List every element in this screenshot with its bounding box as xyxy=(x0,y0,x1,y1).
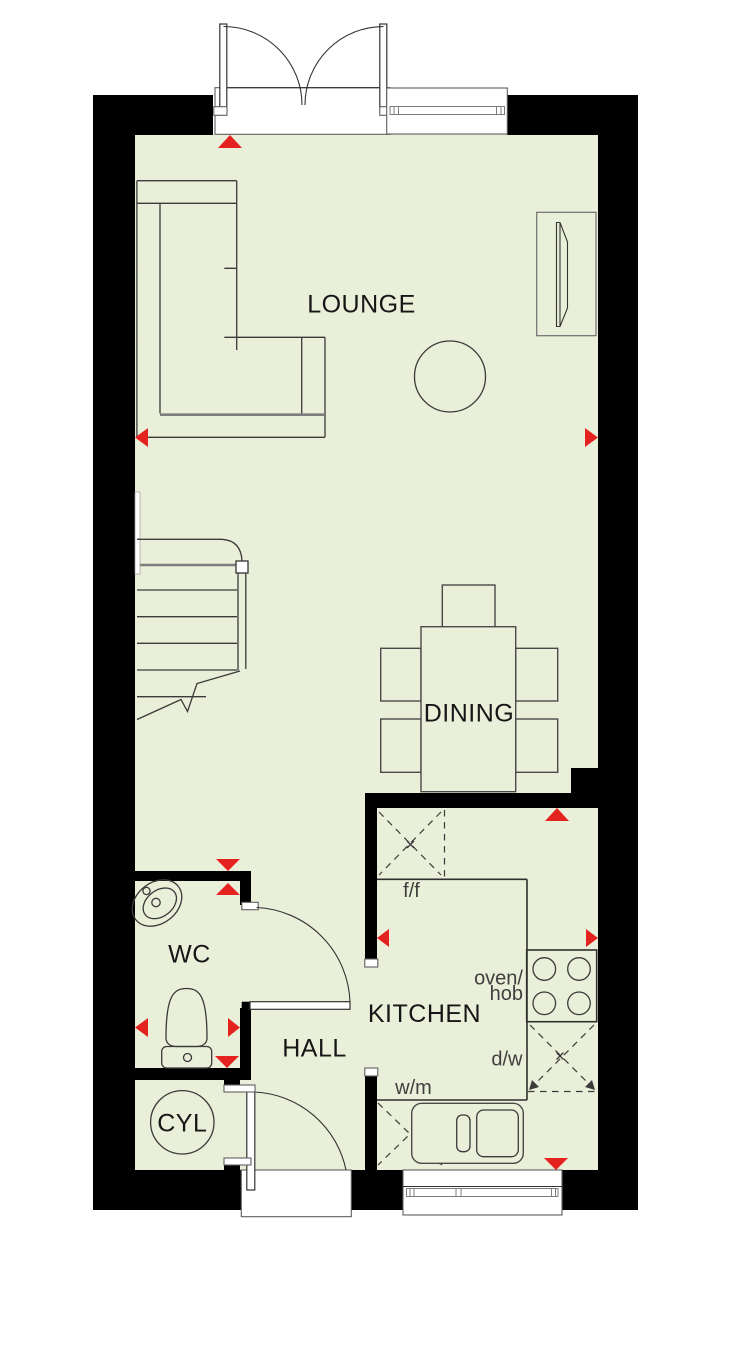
wall-bottom-right xyxy=(562,1170,638,1210)
room-label-cyl: CYL xyxy=(157,1110,207,1138)
wall-right xyxy=(598,95,638,1210)
sink-unit-outline xyxy=(412,1103,524,1163)
dining-chair xyxy=(442,585,495,630)
cyl-doorway-jamb-bottom xyxy=(224,1158,251,1165)
wall-dining-step xyxy=(571,768,598,793)
front-door-porch xyxy=(241,1170,351,1217)
room-label-wc: WC xyxy=(168,941,211,969)
french-door-threshold xyxy=(215,88,390,135)
wall-wc-door-stub xyxy=(240,881,251,905)
front-door-leaf xyxy=(247,1090,255,1190)
kitchen-sink xyxy=(412,1103,524,1163)
kitchen-doorway-jamb-bottom xyxy=(365,1068,378,1076)
wall-kitchen-west-upper xyxy=(365,808,377,966)
label-dishwasher: d/w xyxy=(491,1049,523,1071)
label-fridge-freezer: f/f xyxy=(403,880,420,902)
room-label-dining: DINING xyxy=(424,700,515,728)
dining-chair xyxy=(381,648,421,701)
label-oven-hob-line2: hob xyxy=(490,983,523,1005)
room-label-kitchen: KITCHEN xyxy=(368,1000,481,1028)
wall-door-nub xyxy=(242,1002,250,1014)
stair-string xyxy=(135,492,140,574)
cyl-doorway-jamb-top xyxy=(224,1085,255,1092)
dining-chair xyxy=(516,648,558,701)
window-glazing xyxy=(407,1189,559,1197)
lounge-window xyxy=(387,88,508,134)
wc-door-leaf xyxy=(250,1002,350,1010)
window-glazing xyxy=(390,107,505,115)
dining-chair xyxy=(381,719,421,772)
room-label-lounge: LOUNGE xyxy=(307,291,416,319)
french-door-leaf-left xyxy=(220,24,227,107)
stair-newel-post xyxy=(236,561,248,573)
french-doors xyxy=(214,24,394,134)
label-washing-machine: w/m xyxy=(394,1077,432,1099)
floor-plan-svg: LOUNGE DINING KITCHEN HALL WC CYL f/f ov… xyxy=(0,0,734,1348)
wall-bottom-left xyxy=(93,1170,241,1210)
wall-wc-bottom xyxy=(135,1068,245,1080)
wall-kitchen-dining xyxy=(365,793,598,808)
floor-plan-page: LOUNGE DINING KITCHEN HALL WC CYL f/f ov… xyxy=(0,0,734,1348)
wall-wc-top xyxy=(135,871,251,881)
kitchen-doorway-jamb-top xyxy=(365,959,378,967)
dining-chair xyxy=(516,719,558,772)
wall-kitchen-west-lower xyxy=(365,1068,377,1172)
french-door-leaf-right xyxy=(380,24,387,107)
room-label-hall: HALL xyxy=(282,1035,347,1063)
wall-bottom-mid xyxy=(351,1170,403,1210)
french-door-jamb-left xyxy=(214,107,227,116)
wc-door-jamb xyxy=(242,902,258,909)
kitchen-window xyxy=(403,1170,562,1215)
wall-left xyxy=(93,95,135,1210)
